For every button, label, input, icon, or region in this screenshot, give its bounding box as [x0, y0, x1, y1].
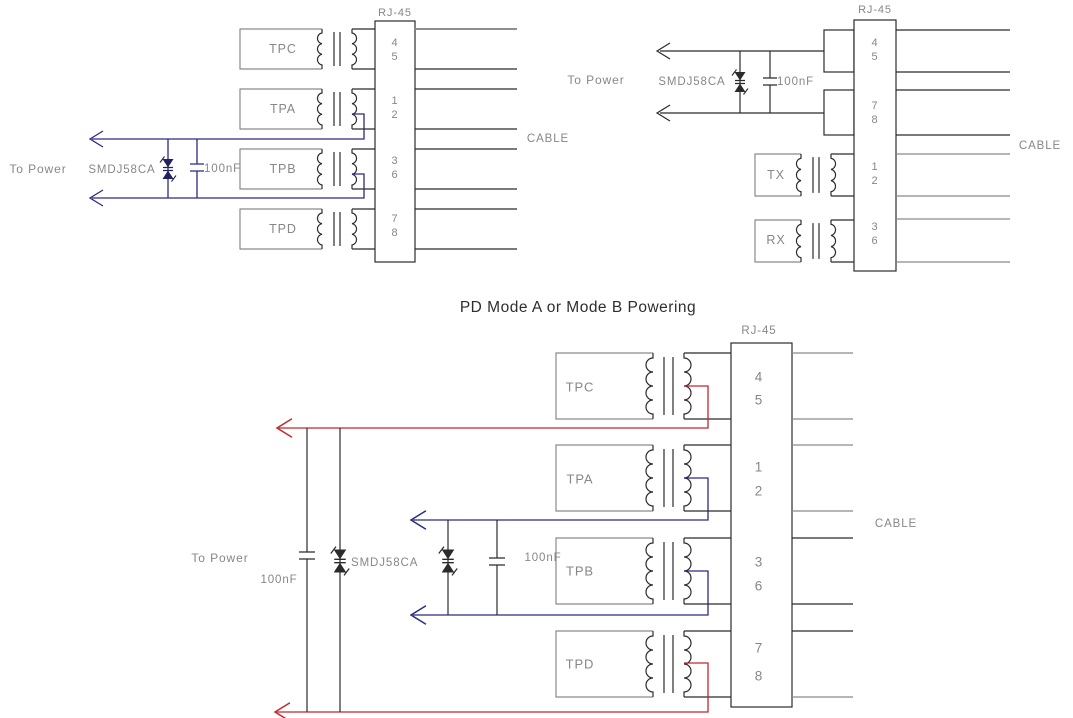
pin-label: 1 [871, 161, 878, 173]
pin-label: 3 [755, 555, 763, 570]
to-power-label: To Power [567, 73, 624, 87]
pin-label: 6 [871, 235, 878, 247]
pin-label: 8 [755, 669, 763, 684]
block-label-tx: TX [767, 168, 785, 182]
cable-wires [792, 353, 853, 697]
pin-label: 4 [391, 37, 398, 49]
pin-label: 2 [871, 175, 878, 187]
cap-label: 100nF [204, 163, 241, 175]
diagram-top-left: RJ-45 4 5 1 2 3 6 7 8 TPC TPA TPB TPD To… [9, 7, 569, 262]
rj45-label: RJ-45 [741, 325, 776, 337]
pin-label: 5 [755, 393, 763, 408]
capacitor-icon [763, 51, 777, 113]
cap1-label: 100nF [260, 574, 297, 586]
pin-label: 4 [755, 370, 763, 385]
pin-label: 5 [871, 51, 878, 63]
pin-label: 2 [755, 484, 763, 499]
center-tap-wire [92, 114, 364, 139]
block-label-tpb: TPB [269, 162, 296, 176]
pin-label: 6 [391, 169, 398, 181]
capacitor-icon [489, 520, 505, 615]
capacitor-icon [299, 428, 315, 712]
transformer-icon [796, 154, 835, 196]
tvs-label: SMDJ58CA [351, 557, 418, 569]
center-tap-wire-red [279, 386, 708, 428]
pin-label: 3 [391, 155, 398, 167]
pin-label: 7 [871, 100, 878, 112]
cable-wires [896, 154, 1010, 262]
pin-label: 2 [391, 109, 398, 121]
shorting-block-45 [824, 30, 854, 72]
capacitor-icon [190, 139, 204, 198]
transformer-icon [317, 29, 356, 69]
cable-label: CABLE [875, 518, 917, 530]
to-power-label: To Power [9, 162, 66, 176]
center-tap-wire-red [277, 663, 708, 712]
block-label-tpb: TPB [566, 564, 594, 579]
diagram-pd-mode-ab: PD Mode A or Mode B Powering [191, 299, 917, 718]
diagram-title: PD Mode A or Mode B Powering [460, 299, 696, 316]
block-label-tpa: TPA [566, 472, 593, 487]
cable-wires [896, 30, 1010, 135]
cap-label: 100nF [777, 76, 814, 88]
rj45-label: RJ-45 [378, 7, 412, 19]
block-label-tpa: TPA [270, 102, 296, 116]
tvs-label: SMDJ58CA [88, 164, 155, 176]
cable-label: CABLE [527, 133, 569, 145]
shorting-block-78 [824, 90, 854, 135]
transformer-icon [646, 631, 691, 697]
block-label-tpc: TPC [269, 42, 297, 56]
rj45-label: RJ-45 [858, 4, 892, 16]
center-tap-wire [92, 174, 364, 198]
transformer-icon [317, 89, 356, 129]
pin-label: 7 [755, 641, 763, 656]
schematic-canvas: RJ-45 4 5 1 2 3 6 7 8 TPC TPA TPB TPD To… [0, 0, 1073, 718]
pin-label: 4 [871, 37, 878, 49]
transformer-icons [646, 353, 691, 697]
cable-label: CABLE [1019, 140, 1061, 152]
pin-label: 6 [755, 579, 763, 594]
pin-label: 8 [871, 114, 878, 126]
transformer-icons [796, 154, 835, 262]
transformer-icon [317, 209, 356, 249]
pin-label: 8 [391, 227, 398, 239]
power-arrow-icon [275, 703, 290, 718]
pin-label: 5 [391, 51, 398, 63]
block-label-tpc: TPC [566, 380, 595, 395]
cap2-label: 100nF [524, 552, 561, 564]
poe-wiring-schematic: RJ-45 4 5 1 2 3 6 7 8 TPC TPA TPB TPD To… [0, 0, 1073, 718]
block-label-rx: RX [766, 233, 785, 247]
pin-label: 3 [871, 221, 878, 233]
diagram-top-right: RJ-45 4 5 7 8 1 2 3 6 TX RX To Power SMD… [567, 4, 1061, 271]
block-label-tpd: TPD [566, 657, 595, 672]
tvs-label: SMDJ58CA [658, 76, 725, 88]
transformer-icon [317, 149, 356, 189]
transformer-icon [796, 220, 835, 262]
pair-wires-left [831, 154, 854, 262]
pin-label: 1 [391, 95, 398, 107]
block-label-tpd: TPD [269, 222, 297, 236]
channel-blocks [556, 353, 653, 697]
pin-label: 1 [755, 460, 763, 475]
power-circuit [90, 114, 364, 206]
cable-wires [415, 69, 517, 249]
to-power-label: To Power [191, 551, 248, 565]
cable-wires [792, 538, 853, 631]
pin-label: 7 [391, 213, 398, 225]
